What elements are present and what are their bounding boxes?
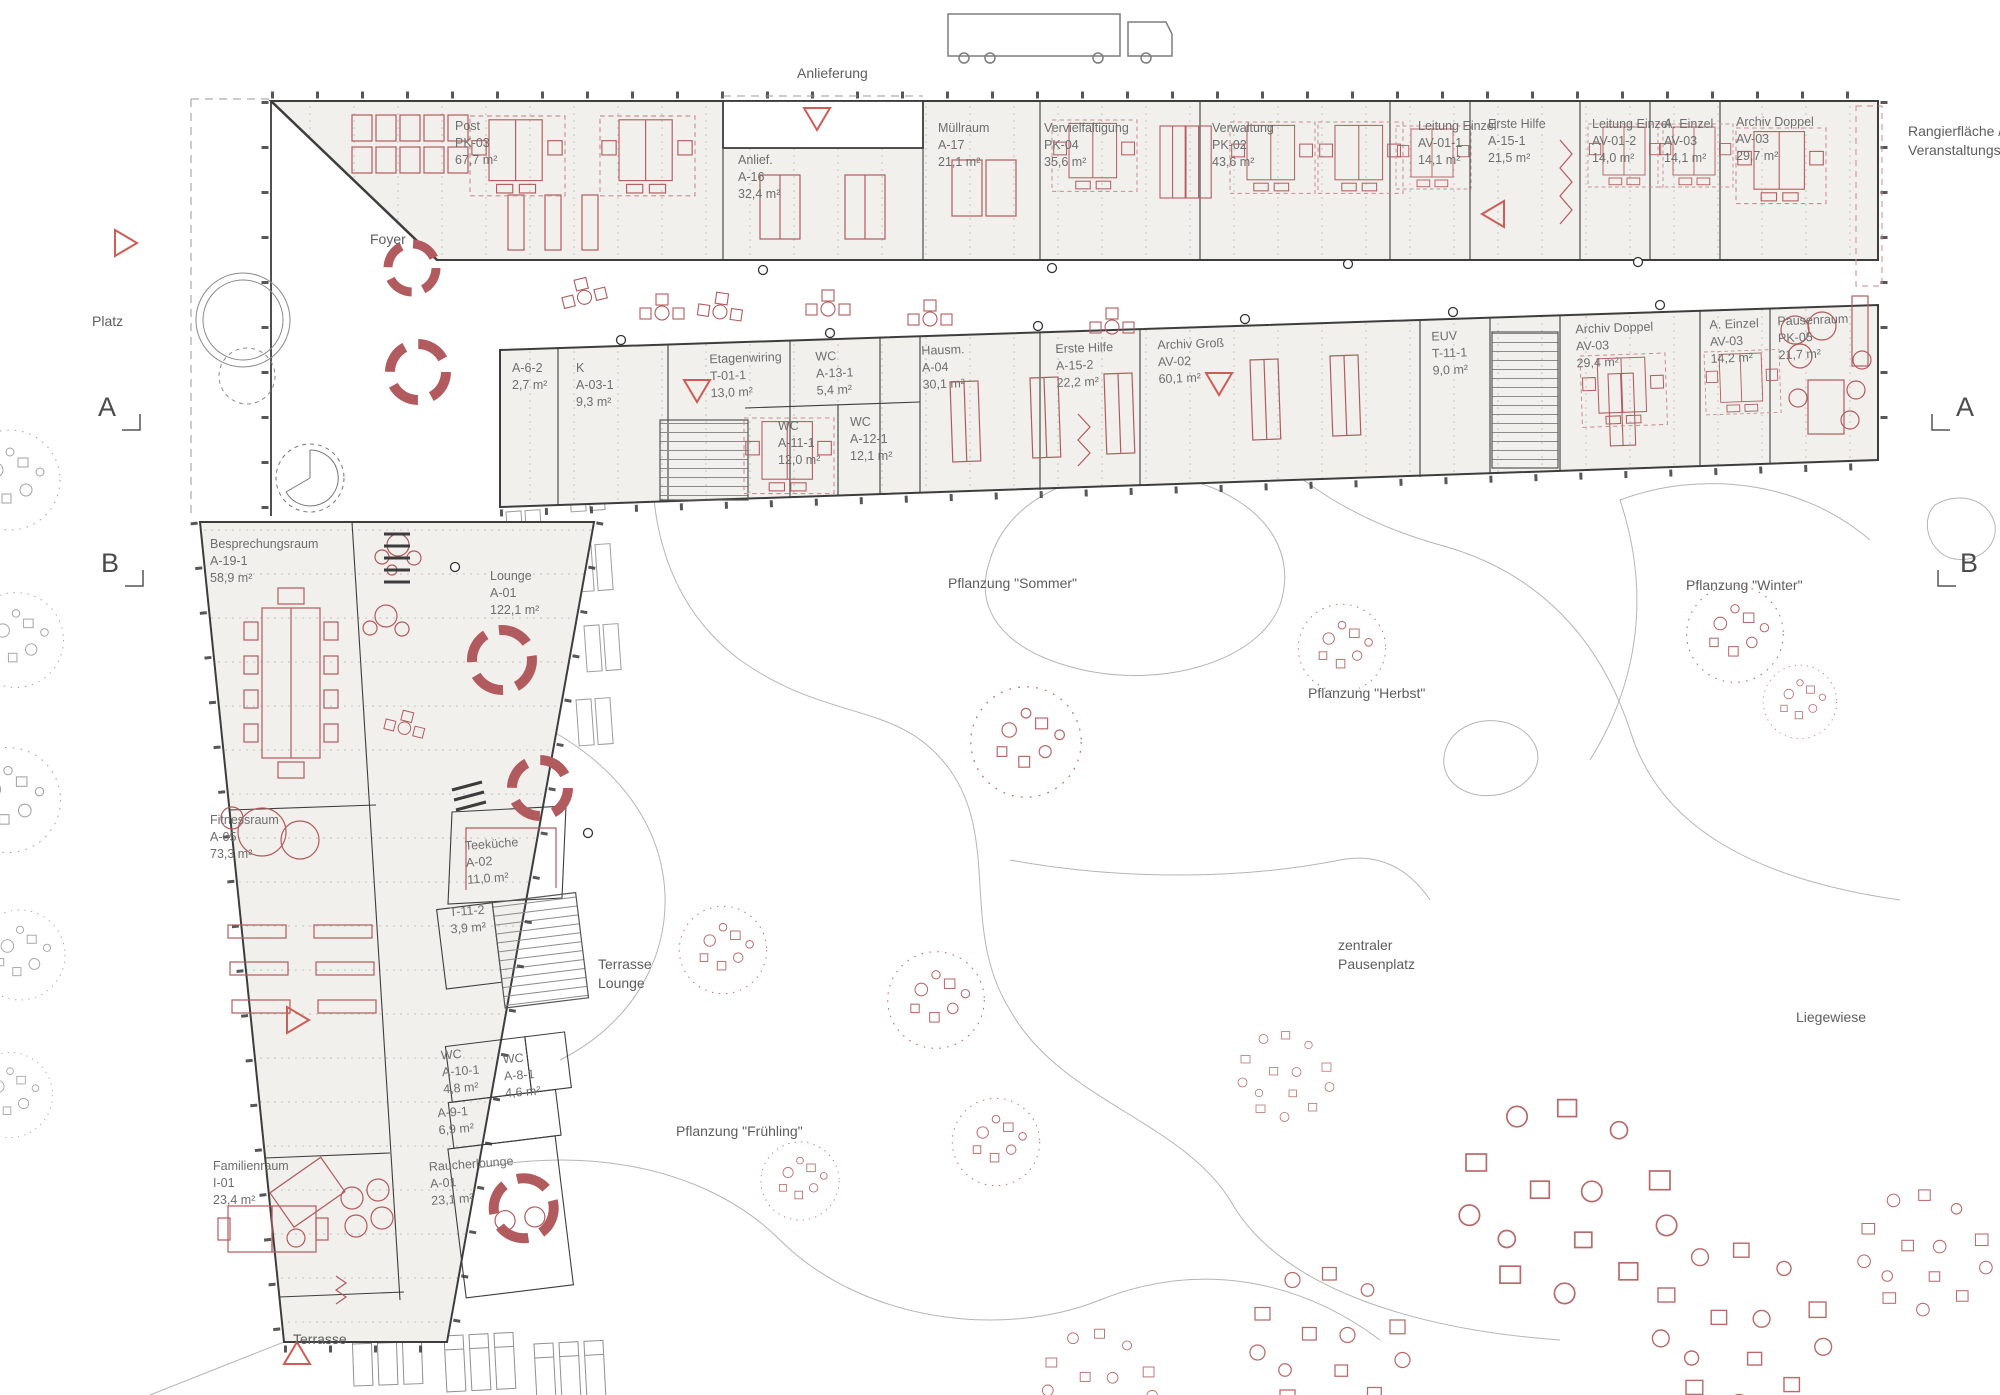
room-label-wc-a12: WC A-12-1 12,1 m² (850, 414, 892, 465)
room-label-wc-a10: WC A-10-1 4,8 m² (440, 1045, 481, 1098)
label-pausenplatz-line1: zentraler (1338, 937, 1392, 953)
room-area: 23,4 m² (213, 1192, 289, 1209)
room-name: Erste Hilfe (1055, 339, 1113, 358)
room-area: 5,4 m² (816, 381, 854, 399)
room-label-erste-hilfe-2: Erste Hilfe A-15-2 22,2 m² (1055, 339, 1114, 392)
label-rangier-line2: Veranstaltungsort (1908, 142, 2000, 158)
label-terrasse: Terrasse (293, 1330, 347, 1349)
label-pausenplatz-line2: Pausenplatz (1338, 956, 1415, 972)
room-label-a-9-1: A-9-1 6,9 m² (437, 1103, 475, 1139)
room-area: 6,9 m² (438, 1120, 475, 1139)
room-name: A. Einzel (1664, 116, 1713, 133)
room-name: Vervielfältigung (1044, 120, 1129, 137)
section-marker-b-left: B (101, 548, 119, 579)
room-label-familienraum: Familienraum I-01 23,4 m² (213, 1158, 289, 1209)
room-label-a-einzel-2: A. Einzel AV-03 14,2 m² (1709, 315, 1760, 368)
room-label-t-11-2: T-11-2 3,9 m² (449, 902, 487, 938)
room-name: WC (778, 418, 820, 435)
room-label-a-6-2: A-6-2 2,7 m² (512, 360, 547, 394)
room-area: 4,6 m² (505, 1083, 542, 1102)
plan-drawing (0, 0, 2000, 1395)
room-name: WC (815, 347, 853, 365)
room-area: 2,7 m² (512, 377, 547, 394)
room-area: 14,1 m² (1664, 150, 1713, 167)
room-area: 14,2 m² (1710, 349, 1760, 368)
room-area: 32,4 m² (738, 186, 780, 203)
room-name: Archiv Doppel (1575, 319, 1653, 339)
room-label-etagenwiring: Etagenwiring T-01-1 13,0 m² (709, 349, 783, 402)
room-area: 43,6 m² (1212, 154, 1274, 171)
room-area: 14,1 m² (1418, 152, 1497, 169)
room-name: K (576, 360, 614, 377)
room-label-leitung-einzel-1: Leitung Einzel AV-01-1 14,1 m² (1418, 118, 1497, 169)
truck-icon (948, 14, 1172, 63)
label-liegewiese: Liegewiese (1796, 1008, 1866, 1027)
room-name: EUV (1431, 327, 1467, 345)
room-code: A-15-2 (1056, 356, 1114, 375)
room-label-k: K A-03-1 9,3 m² (576, 360, 614, 411)
room-code: T-11-1 (1432, 344, 1468, 362)
section-marker-b-right: B (1960, 548, 1978, 579)
room-label-lounge: Lounge A-01 122,1 m² (490, 568, 539, 619)
room-code: A-11-1 (778, 435, 820, 452)
room-area: 67,7 m² (455, 152, 497, 169)
spiral-stair-icon (276, 444, 344, 512)
room-label-euv: EUV T-11-1 9,0 m² (1431, 327, 1468, 379)
room-area: 14,0 m² (1592, 150, 1671, 167)
label-rangierflaeche: Rangierfläche / Veranstaltungsort (1908, 122, 2000, 160)
room-area: 9,0 m² (1432, 361, 1468, 379)
label-pflanzung-fruehling: Pflanzung "Frühling" (676, 1122, 803, 1141)
label-pausenplatz: zentraler Pausenplatz (1338, 936, 1415, 974)
room-label-wc-a13: WC A-13-1 5,4 m² (815, 347, 854, 399)
room-label-archiv-gross: Archiv Groß AV-02 60,1 m² (1157, 335, 1225, 388)
room-area: 21,5 m² (1488, 150, 1546, 167)
room-code: PK-02 (1212, 137, 1274, 154)
room-code: A-12-1 (850, 431, 892, 448)
room-label-wc-a8: WC A-8-1 4,6 m² (502, 1049, 541, 1102)
room-code: A-04 (922, 358, 966, 376)
room-code: I-01 (213, 1175, 289, 1192)
room-label-archiv-doppel-1: Archiv Doppel AV-03 29,7 m² (1736, 114, 1814, 165)
room-label-raucherlounge: Raucherlounge A-01 23,1 m² (428, 1153, 516, 1210)
room-label-vervielfaeltigung: Vervielfältigung PK-04 35,6 m² (1044, 120, 1129, 171)
label-pflanzung-sommer: Pflanzung "Sommer" (948, 574, 1077, 593)
room-name: Pausenraum (1777, 311, 1848, 330)
room-code: AV-03 (1736, 131, 1814, 148)
room-label-besprechungsraum: Besprechungsraum A-19-1 58,9 m² (210, 536, 318, 587)
room-area: 29,4 m² (1576, 353, 1654, 373)
room-code: A-01 (490, 585, 539, 602)
label-pflanzung-herbst: Pflanzung "Herbst" (1308, 684, 1425, 703)
room-area: 73,3 m² (210, 846, 279, 863)
room-name: Erste Hilfe (1488, 116, 1546, 133)
label-terrasse-lounge: Terrasse Lounge (598, 955, 652, 993)
room-area: 3,9 m² (450, 919, 487, 938)
room-area: 12,1 m² (850, 448, 892, 465)
room-area: 21,7 m² (1778, 345, 1849, 364)
room-name: Lounge (490, 568, 539, 585)
room-label-wc-a11: WC A-11-1 12,0 m² (778, 418, 820, 469)
label-pflanzung-winter: Pflanzung "Winter" (1686, 576, 1803, 595)
room-name: Leitung Einzel (1592, 116, 1671, 133)
room-label-archiv-doppel-2: Archiv Doppel AV-03 29,4 m² (1575, 319, 1655, 373)
room-name: Archiv Doppel (1736, 114, 1814, 131)
room-code: A-15-1 (1488, 133, 1546, 150)
room-name: Etagenwiring (709, 349, 782, 369)
room-name: Verwaltung (1212, 120, 1274, 137)
room-code: A-16 (738, 169, 780, 186)
room-label-pausenraum: Pausenraum PK-05 21,7 m² (1777, 311, 1850, 364)
room-name: A. Einzel (1709, 315, 1759, 334)
room-label-a-einzel-1: A. Einzel AV-03 14,1 m² (1664, 116, 1713, 167)
room-area: 122,1 m² (490, 602, 539, 619)
label-rangier-line1: Rangierfläche / (1908, 123, 2000, 139)
room-name: Fitnessraum (210, 812, 279, 829)
room-name: Leitung Einzel (1418, 118, 1497, 135)
room-area: 13,0 m² (710, 383, 783, 403)
room-name: Besprechungsraum (210, 536, 318, 553)
section-marker-a-left: A (98, 392, 116, 423)
room-code: A-13-1 (816, 364, 854, 382)
room-code: PK-03 (455, 135, 497, 152)
room-label-erste-hilfe-1: Erste Hilfe A-15-1 21,5 m² (1488, 116, 1546, 167)
room-area: 35,6 m² (1044, 154, 1129, 171)
room-label-teekueche: Teeküche A-02 11,0 m² (464, 834, 521, 889)
room-name: Archiv Groß (1157, 335, 1224, 354)
room-area: 12,0 m² (778, 452, 820, 469)
room-name: Familienraum (213, 1158, 289, 1175)
room-name: Anlief. (738, 152, 780, 169)
room-code: AV-01-1 (1418, 135, 1497, 152)
room-code: A-03-1 (576, 377, 614, 394)
room-name: Müllraum (938, 120, 989, 137)
room-code: A-6-2 (512, 360, 547, 377)
room-area: 29,7 m² (1736, 148, 1814, 165)
room-code: AV-03 (1710, 332, 1760, 351)
label-platz: Platz (92, 312, 123, 331)
room-label-verwaltung: Verwaltung PK-02 43,6 m² (1212, 120, 1274, 171)
room-code: A-17 (938, 137, 989, 154)
room-code: AV-01-2 (1592, 133, 1671, 150)
room-area: 21,1 m² (938, 154, 989, 171)
room-label-hausm: Hausm. A-04 30,1 m² (921, 341, 966, 393)
room-area: 22,2 m² (1056, 373, 1114, 392)
label-anlieferung: Anlieferung (797, 64, 868, 83)
label-foyer: Foyer (370, 230, 406, 249)
room-area: 9,3 m² (576, 394, 614, 411)
room-code: AV-03 (1664, 133, 1713, 150)
room-code: A-19-1 (210, 553, 318, 570)
room-code: A-05 (210, 829, 279, 846)
label-terrasse-lounge-line1: Terrasse (598, 956, 652, 972)
fountain-icon (196, 273, 290, 404)
room-area: 58,9 m² (210, 570, 318, 587)
room-name: WC (850, 414, 892, 431)
room-label-fitnessraum: Fitnessraum A-05 73,3 m² (210, 812, 279, 863)
room-code: PK-04 (1044, 137, 1129, 154)
label-terrasse-lounge-line2: Lounge (598, 975, 645, 991)
room-label-anlief: Anlief. A-16 32,4 m² (738, 152, 780, 203)
room-area: 4,8 m² (443, 1079, 482, 1099)
floor-plan-canvas: Post PK-03 67,7 m² Anlief. A-16 32,4 m² … (0, 0, 2000, 1395)
room-area: 60,1 m² (1158, 369, 1225, 388)
room-label-post: Post PK-03 67,7 m² (455, 118, 497, 169)
trees-gray (0, 430, 65, 1138)
room-area: 30,1 m² (922, 375, 966, 393)
room-name: Hausm. (921, 341, 965, 359)
section-marker-a-right: A (1956, 392, 1974, 423)
room-name: Post (455, 118, 497, 135)
room-label-leitung-einzel-2: Leitung Einzel AV-01-2 14,0 m² (1592, 116, 1671, 167)
room-label-muellraum: Müllraum A-17 21,1 m² (938, 120, 989, 171)
trees-red (679, 586, 1992, 1395)
